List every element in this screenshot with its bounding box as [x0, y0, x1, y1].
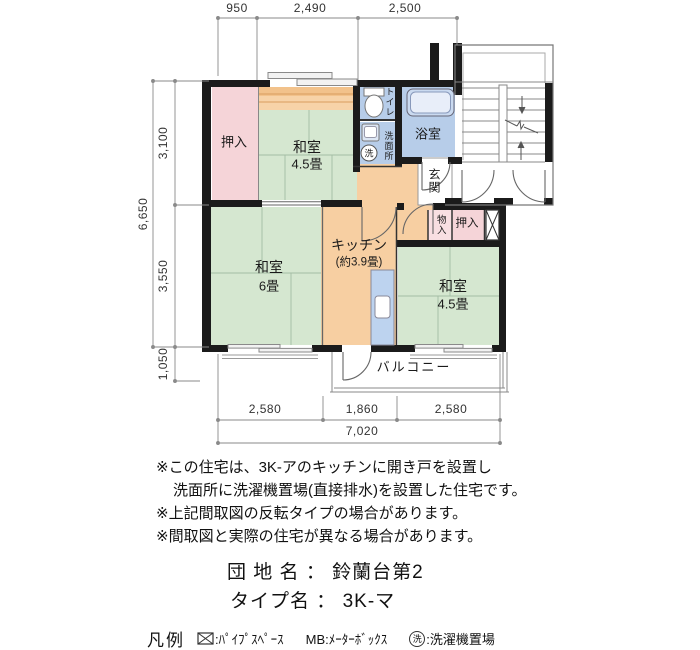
dim-left-3100: 3,100 — [157, 127, 169, 160]
estate-name-sep: ： — [306, 562, 326, 583]
dim-bottom-1860: 1,860 — [346, 403, 379, 415]
note-line-3: ※上記間取図の反転タイプの場合があります。 — [156, 502, 527, 525]
notes-block: ※この住宅は、3K-アのキッチンに開き戸を設置し 洗面所に洗濯機置場(直接排水)… — [156, 456, 527, 548]
legend-laundry-char: 洗 — [413, 632, 422, 645]
room-label-toilet: トイレ — [385, 87, 394, 117]
note-line-1: ※この住宅は、3K-アのキッチンに開き戸を設置し — [156, 456, 527, 479]
room-size-washitsu-top: 4.5畳 — [291, 158, 322, 171]
stair-arrows — [505, 96, 538, 160]
legend-laundry-label: :洗濯機置場 — [426, 629, 495, 648]
legend: 凡例 :ﾊﾟｲﾌﾟｽﾍﾟｰｽ MB:ﾒｰﾀｰﾎﾞｯｸｽ 洗 :洗濯機置場 — [147, 626, 517, 650]
legend-mb-label: MB:ﾒｰﾀｰﾎﾞｯｸｽ — [306, 629, 388, 648]
room-label-kitchen: キッチン — [331, 238, 387, 252]
legend-item-meter-box: MB:ﾒｰﾀｰﾎﾞｯｸｽ — [306, 629, 388, 648]
laundry-mark-char: 洗 — [364, 147, 373, 160]
estate-name-line: 団 地 名 ： 鈴蘭台第2 — [227, 557, 424, 584]
room-label-bath: 浴室 — [415, 128, 441, 141]
legend-heading: 凡例 — [147, 626, 185, 650]
dim-left-6650: 6,650 — [137, 198, 149, 231]
room-label-entrance: 玄関 — [428, 168, 440, 194]
toilet-bowl — [365, 95, 383, 117]
dim-top-950: 950 — [226, 2, 248, 14]
dim-bottom-2580-l: 2,580 — [249, 403, 282, 415]
estate-name-label: 団 地 名 — [227, 562, 300, 583]
dim-top-2500: 2,500 — [389, 2, 422, 14]
room-label-balcony: バルコニー — [377, 361, 452, 374]
laundry-mark: 洗 — [361, 145, 378, 162]
legend-item-laundry: 洗 :洗濯機置場 — [409, 629, 495, 648]
room-label-washitsu6: 和室 — [255, 260, 283, 274]
window-sills — [222, 355, 497, 359]
floorplan-drawing — [0, 0, 700, 450]
laundry-circle-icon: 洗 — [409, 631, 425, 647]
room-label-oshiire-left: 押入 — [221, 136, 247, 149]
type-name-label: タイプ名 — [230, 591, 310, 612]
legend-item-pipe-space: :ﾊﾟｲﾌﾟｽﾍﾟｰｽ — [197, 629, 284, 648]
dim-bottom-7020: 7,020 — [346, 425, 379, 437]
room-size-washitsu-br: 4.5畳 — [437, 298, 468, 311]
dim-left-1050: 1,050 — [157, 348, 169, 381]
room-label-washitsu-br: 和室 — [439, 279, 467, 293]
room-size-washitsu6: 6畳 — [259, 280, 279, 293]
note-line-4: ※間取図と実際の住宅が異なる場合があります。 — [156, 525, 527, 548]
floorplan-page: 950 2,490 2,500 3,100 6,650 3,550 1,050 … — [0, 0, 700, 650]
room-size-kitchen: (約3.9畳) — [336, 257, 383, 269]
room-label-storage: 物入 — [435, 215, 445, 236]
dim-bottom-2580-r: 2,580 — [435, 403, 468, 415]
dim-top-2490: 2,490 — [294, 2, 327, 14]
room-label-oshiire-right: 押入 — [456, 218, 479, 230]
legend-pipe-label: :ﾊﾟｲﾌﾟｽﾍﾟｰｽ — [215, 629, 284, 648]
note-line-2: 洗面所に洗濯機置場(直接排水)を設置した住宅です。 — [156, 479, 527, 502]
estate-name-value: 鈴蘭台第2 — [332, 562, 424, 583]
pipe-space-icon — [197, 632, 214, 645]
dim-left-3550: 3,550 — [157, 260, 169, 293]
type-name-sep: ： — [316, 591, 336, 612]
type-name-line: タイプ名 ： 3K-マ — [230, 586, 395, 613]
type-name-value: 3K-マ — [343, 591, 396, 612]
room-label-washitsu-top: 和室 — [293, 140, 321, 154]
room-label-washroom: 洗面所 — [384, 131, 393, 161]
